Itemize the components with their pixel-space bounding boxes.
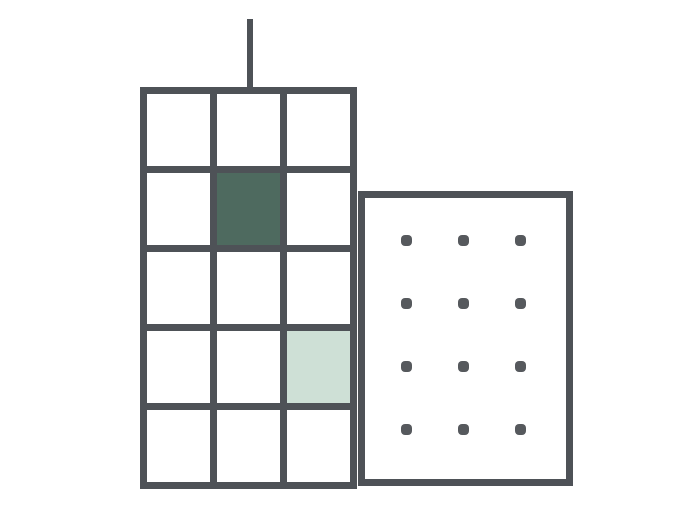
antenna-icon xyxy=(247,19,253,93)
dot-window-icon xyxy=(401,235,412,246)
dot-window-icon xyxy=(458,424,469,435)
dot-window-icon xyxy=(515,235,526,246)
dot-window-icon xyxy=(458,235,469,246)
city-illustration xyxy=(0,0,680,510)
window-cell xyxy=(147,410,210,482)
window-cell xyxy=(147,94,210,166)
window-cell xyxy=(217,94,280,166)
dot-window-icon xyxy=(401,424,412,435)
window-cell xyxy=(287,410,350,482)
lit-window-dark xyxy=(217,173,280,245)
window-cell xyxy=(217,410,280,482)
tall-building xyxy=(140,87,357,489)
dot-window-icon xyxy=(515,424,526,435)
short-building xyxy=(358,191,573,486)
window-cell xyxy=(147,331,210,403)
window-cell xyxy=(217,252,280,324)
window-cell xyxy=(287,252,350,324)
window-cell xyxy=(147,252,210,324)
lit-window-mint xyxy=(287,331,350,403)
dot-window-icon xyxy=(515,361,526,372)
dot-window-icon xyxy=(458,361,469,372)
window-cell xyxy=(287,94,350,166)
window-cell xyxy=(287,173,350,245)
dot-window-icon xyxy=(401,361,412,372)
dot-window-icon xyxy=(401,298,412,309)
window-cell xyxy=(147,173,210,245)
window-cell xyxy=(217,331,280,403)
dot-window-icon xyxy=(515,298,526,309)
dot-window-icon xyxy=(458,298,469,309)
